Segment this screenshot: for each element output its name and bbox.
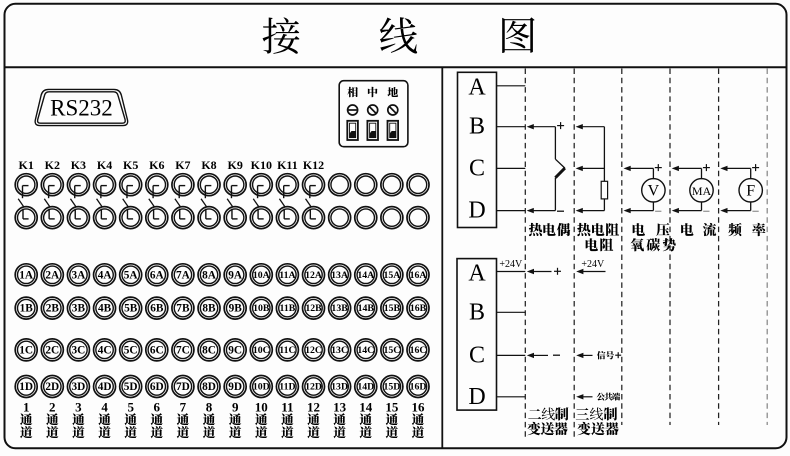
svg-text:16C: 16C	[410, 345, 427, 356]
svg-text:4C: 4C	[98, 344, 112, 356]
svg-text:F: F	[746, 182, 755, 199]
svg-text:8B: 8B	[202, 303, 216, 315]
svg-text:K1: K1	[19, 158, 34, 172]
svg-text:A: A	[468, 260, 486, 286]
svg-text:14B: 14B	[358, 303, 375, 314]
svg-text:9A: 9A	[228, 269, 243, 281]
svg-text:D: D	[468, 384, 485, 410]
svg-text:K10: K10	[251, 158, 272, 172]
svg-text:16B: 16B	[410, 303, 427, 314]
svg-text:4: 4	[101, 400, 108, 415]
svg-text:3B: 3B	[72, 303, 86, 315]
svg-text:K2: K2	[45, 158, 60, 172]
svg-text:13C: 13C	[331, 345, 348, 356]
svg-text:5B: 5B	[124, 303, 138, 315]
svg-text:7A: 7A	[176, 269, 191, 281]
svg-text:11D: 11D	[279, 382, 295, 393]
svg-text:K4: K4	[97, 158, 112, 172]
svg-text:11B: 11B	[280, 303, 296, 314]
svg-text:4D: 4D	[98, 381, 112, 393]
svg-text:15: 15	[385, 400, 399, 415]
svg-text:1A: 1A	[19, 269, 34, 281]
svg-text:5A: 5A	[124, 269, 139, 281]
svg-text:9: 9	[232, 400, 239, 415]
svg-text:14C: 14C	[357, 345, 374, 356]
svg-text:C: C	[469, 155, 485, 181]
svg-text:10D: 10D	[253, 382, 270, 393]
svg-text:3D: 3D	[71, 381, 85, 393]
svg-text:12C: 12C	[305, 345, 322, 356]
svg-text:K8: K8	[201, 158, 216, 172]
svg-text:7B: 7B	[176, 303, 190, 315]
svg-text:14D: 14D	[357, 382, 374, 393]
svg-text:4B: 4B	[98, 303, 112, 315]
svg-text:1B: 1B	[20, 303, 34, 315]
svg-text:15C: 15C	[383, 345, 400, 356]
svg-text:B: B	[469, 114, 485, 140]
svg-text:4A: 4A	[98, 269, 113, 281]
svg-text:3C: 3C	[71, 344, 85, 356]
svg-text:15D: 15D	[383, 382, 400, 393]
svg-text:7C: 7C	[176, 344, 190, 356]
svg-text:1C: 1C	[19, 344, 33, 356]
svg-text:1D: 1D	[19, 381, 33, 393]
svg-text:10A: 10A	[253, 270, 270, 281]
svg-text:C: C	[469, 342, 485, 368]
svg-text:V: V	[648, 182, 660, 199]
svg-text:16A: 16A	[410, 270, 427, 281]
svg-text:5: 5	[127, 400, 134, 415]
svg-text:10B: 10B	[253, 303, 270, 314]
svg-text:B: B	[469, 299, 485, 325]
svg-text:11: 11	[281, 400, 293, 415]
svg-text:11A: 11A	[279, 270, 295, 281]
svg-text:K6: K6	[149, 158, 164, 172]
svg-text:6A: 6A	[150, 269, 165, 281]
svg-text:5D: 5D	[124, 381, 138, 393]
svg-text:5C: 5C	[124, 344, 138, 356]
svg-text:12A: 12A	[305, 270, 322, 281]
svg-text:13B: 13B	[331, 303, 348, 314]
svg-text:6B: 6B	[150, 303, 164, 315]
svg-text:3A: 3A	[71, 269, 86, 281]
svg-text:D: D	[468, 198, 485, 224]
svg-text:14: 14	[359, 400, 373, 415]
svg-text:16: 16	[412, 400, 426, 415]
svg-text:+24V: +24V	[499, 259, 523, 270]
svg-text:15A: 15A	[383, 270, 400, 281]
svg-text:MA: MA	[692, 184, 712, 198]
svg-text:+24V: +24V	[581, 259, 605, 270]
svg-text:9B: 9B	[229, 303, 243, 315]
svg-text:7D: 7D	[176, 381, 190, 393]
svg-text:6D: 6D	[150, 381, 164, 393]
svg-text:12B: 12B	[305, 303, 322, 314]
svg-text:K11: K11	[277, 158, 298, 172]
svg-text:8: 8	[206, 400, 213, 415]
svg-text:K3: K3	[71, 158, 86, 172]
svg-text:9C: 9C	[228, 344, 242, 356]
svg-text:9D: 9D	[228, 381, 242, 393]
svg-text:RS232: RS232	[50, 96, 113, 121]
svg-text:8A: 8A	[202, 269, 217, 281]
svg-text:10: 10	[255, 400, 268, 415]
svg-text:2B: 2B	[46, 303, 60, 315]
svg-text:1: 1	[23, 400, 30, 415]
svg-text:15B: 15B	[384, 303, 401, 314]
svg-text:K12: K12	[303, 158, 324, 172]
svg-text:13D: 13D	[331, 382, 348, 393]
svg-text:12: 12	[307, 400, 320, 415]
svg-text:14A: 14A	[357, 270, 374, 281]
svg-text:8D: 8D	[202, 381, 216, 393]
svg-text:A: A	[468, 74, 486, 100]
svg-text:6: 6	[154, 400, 161, 415]
svg-text:8C: 8C	[202, 344, 216, 356]
svg-text:13A: 13A	[331, 270, 348, 281]
svg-text:12D: 12D	[305, 382, 322, 393]
svg-text:2A: 2A	[45, 269, 60, 281]
svg-text:K5: K5	[123, 158, 138, 172]
svg-text:7: 7	[180, 400, 187, 415]
svg-text:3: 3	[75, 400, 82, 415]
svg-text:6C: 6C	[150, 344, 164, 356]
svg-text:2D: 2D	[45, 381, 59, 393]
svg-text:K7: K7	[175, 158, 190, 172]
svg-text:11C: 11C	[279, 345, 295, 356]
svg-text:10C: 10C	[253, 345, 270, 356]
svg-text:K9: K9	[228, 158, 243, 172]
svg-text:2: 2	[49, 400, 56, 415]
svg-text:16D: 16D	[410, 382, 427, 393]
svg-text:13: 13	[333, 400, 347, 415]
svg-text:2C: 2C	[45, 344, 59, 356]
